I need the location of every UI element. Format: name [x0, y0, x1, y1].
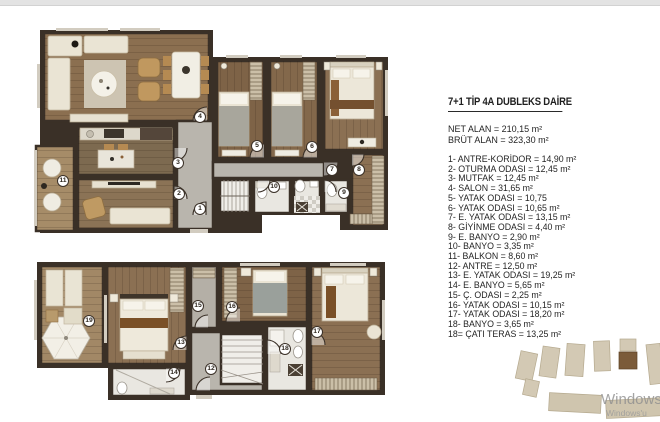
site-building: [549, 393, 602, 414]
site-building: [522, 379, 539, 398]
dining-table-group: [163, 52, 209, 98]
info-panel: 7+1 TİP 4A DUBLEKS DAİRE NET ALAN = 210,…: [448, 96, 658, 339]
stairs-upper: [220, 180, 250, 212]
salon-rug-coffee-table: [84, 60, 126, 108]
gross-area-line: BRÜT ALAN = 323,30 m²: [448, 135, 658, 146]
site-building: [565, 343, 585, 376]
plan-title: 7+1 TİP 4A DUBLEKS DAİRE: [448, 96, 562, 112]
kitchen-counter: [80, 128, 172, 140]
upper-floor-plan: [34, 28, 388, 233]
room-list-item: 18= ÇATI TERAS = 13,25 m²: [448, 330, 658, 340]
site-building: [515, 351, 537, 382]
corridor-upper-2: [213, 162, 324, 178]
windows-watermark-line1: Windows: [601, 391, 660, 408]
closet15-shelves: [193, 268, 215, 278]
net-area-line: NET ALAN = 210,15 m²: [448, 124, 658, 135]
salon-sideboard: [70, 114, 128, 122]
site-building-highlighted: [619, 352, 637, 369]
stairs-lower: [221, 334, 263, 384]
site-building: [620, 339, 636, 351]
site-building: [593, 341, 610, 372]
area-summary: NET ALAN = 210,15 m² BRÜT ALAN = 323,30 …: [448, 124, 658, 146]
site-building: [539, 346, 560, 378]
windows-watermark-line2: Windows'u: [606, 408, 647, 418]
site-building: [646, 343, 660, 384]
lower-floor-plan: [34, 262, 385, 400]
page: 12345678910111213141516171819 7+1 TİP 4A…: [0, 0, 660, 422]
room-list: 1- ANTRE-KORİDOR = 14,90 m²2- OTURMA ODA…: [448, 155, 658, 339]
